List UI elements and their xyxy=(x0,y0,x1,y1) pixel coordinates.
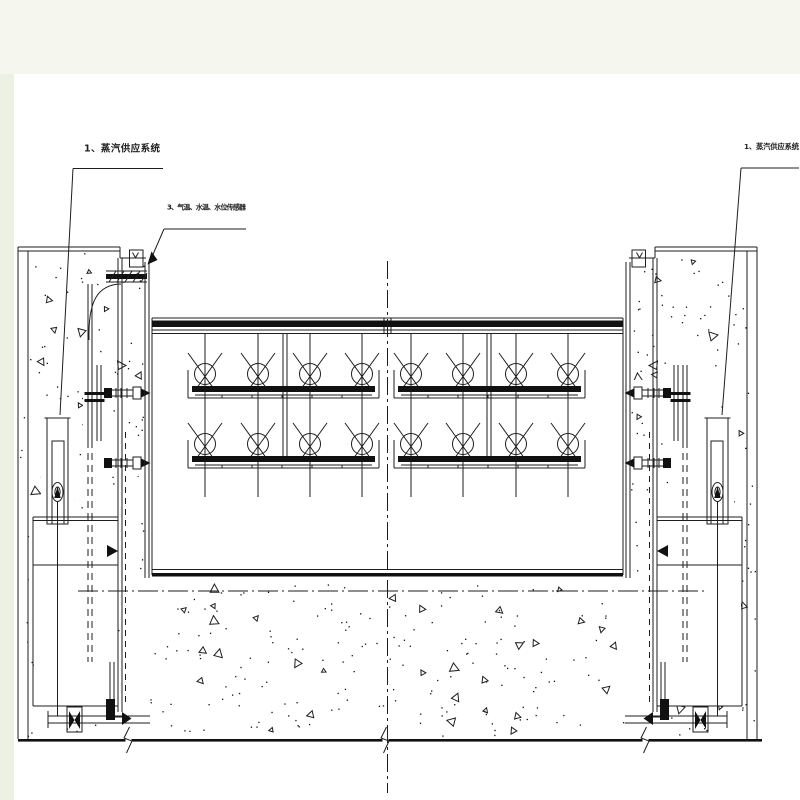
left-margin-strip xyxy=(0,74,14,800)
label-steam-right: 1、蒸汽供应系统 xyxy=(744,142,800,151)
drawing-canvas: 1、蒸汽供应系统 1、蒸汽供应系统 3、气温、水温、水位传感器 xyxy=(0,0,800,800)
label-sensors: 3、气温、水温、水位传感器 xyxy=(167,203,247,212)
label-steam-left: 1、蒸汽供应系统 xyxy=(84,143,160,155)
